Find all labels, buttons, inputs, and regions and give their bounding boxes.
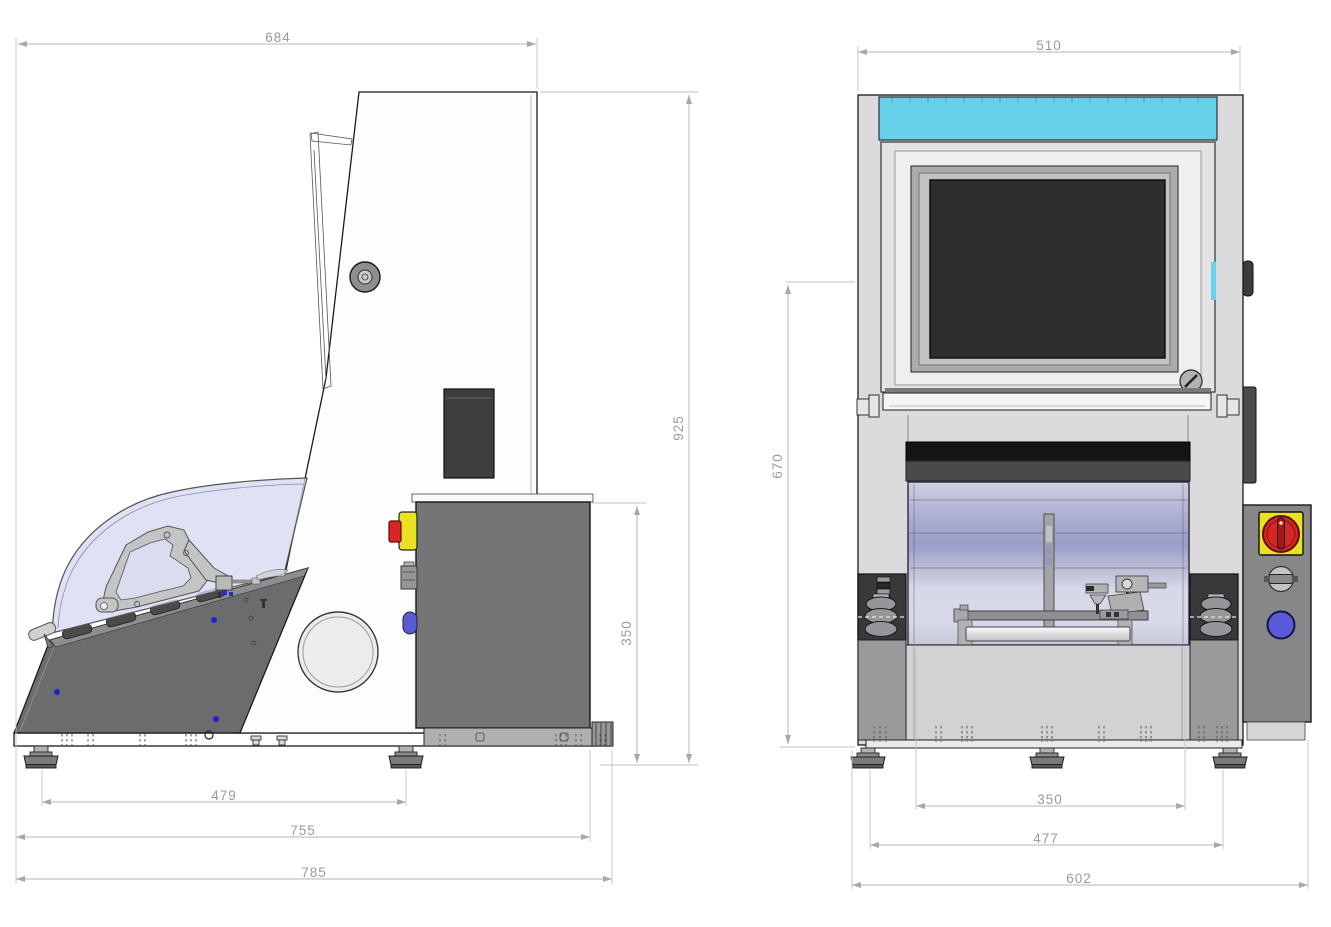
ribbed-connector-block <box>592 722 613 746</box>
cabinet-top-strip <box>412 494 593 502</box>
side-blue-button <box>403 612 417 634</box>
cabinet-base <box>424 728 592 746</box>
lower-front-panel <box>906 645 1190 740</box>
lower-column-right <box>1190 640 1238 740</box>
side-view <box>14 92 613 768</box>
side-knob <box>1243 261 1253 296</box>
front-base-strip <box>866 740 1242 748</box>
isolator-block-left <box>858 574 906 640</box>
monitor-screen <box>930 180 1165 358</box>
dim-side-cabinet-height: 350 <box>619 620 634 646</box>
platen <box>966 627 1130 641</box>
dim-side-foot-pitch: 479 <box>211 788 237 803</box>
side-control-panel <box>1243 505 1311 740</box>
dim-side-top-width: 684 <box>265 30 291 45</box>
dim-front-overall-width: 602 <box>1066 871 1092 886</box>
panel-handle <box>27 621 57 648</box>
door-dark-band <box>906 461 1190 481</box>
leveling-foot <box>1213 748 1247 768</box>
leveling-foot <box>389 746 423 768</box>
cyan-top-window <box>879 97 1217 140</box>
main-power-switch <box>1259 512 1303 555</box>
leveling-foot <box>1030 748 1064 768</box>
porthole-window <box>298 612 378 692</box>
dim-front-chamber-width: 350 <box>1037 792 1063 807</box>
door-black-band <box>906 442 1190 461</box>
dim-front-door-height: 670 <box>770 453 785 479</box>
dim-side-overall-height: 925 <box>671 415 686 441</box>
lower-column-left <box>858 640 906 740</box>
technical-drawing: 684 925 350 479 755 785 <box>0 0 1331 927</box>
drawing-canvas: 684 925 350 479 755 785 <box>0 0 1331 927</box>
blue-pushbutton <box>1268 612 1295 639</box>
dim-front-top-width: 510 <box>1036 38 1062 53</box>
dim-side-base-length: 755 <box>290 823 316 838</box>
leveling-foot <box>851 748 885 768</box>
front-view <box>851 95 1311 768</box>
leveling-foot <box>24 746 58 768</box>
door-side-sliver <box>1211 262 1216 300</box>
electrical-cabinet <box>416 502 590 728</box>
rear-dark-panel <box>444 389 494 478</box>
isolator-block-right <box>1190 574 1238 640</box>
side-connector <box>401 562 417 589</box>
hinge-fin <box>1243 387 1256 483</box>
tower-knob-icon <box>350 262 380 292</box>
touchscreen-door <box>881 142 1216 392</box>
dim-side-overall-length: 785 <box>301 865 327 880</box>
dim-front-foot-pitch: 477 <box>1033 831 1059 846</box>
